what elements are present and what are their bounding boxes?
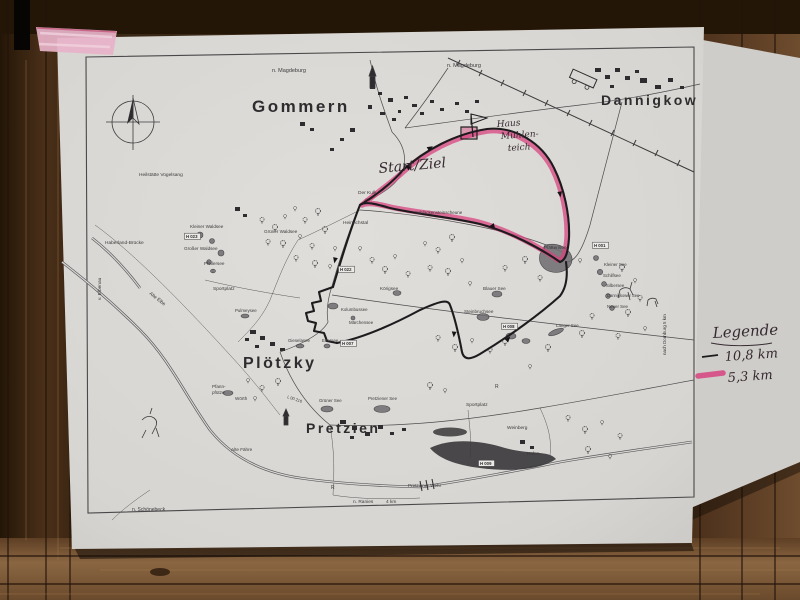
building-icon [250,330,256,334]
legend-line-pink [698,373,723,376]
map-label-heilstätte-vogelsang: Heilstätte Vogelsang [139,172,183,178]
building-icon [243,214,247,217]
trail-badge-h-009: H 009 [480,461,492,466]
building-icon [465,110,469,113]
map-label-langer-see: Langer See [556,323,579,328]
map-label-n-magdeburg: n. Magdeburg [447,63,481,69]
building-icon [680,86,684,89]
map-label-steinbruchsee: Steinbruchsee [464,309,494,314]
building-icon [388,98,393,102]
building-icon [340,138,344,141]
map-label-pfeilersee: Pfeilersee [204,261,225,266]
building-icon [380,112,385,115]
building-icon [530,446,534,449]
map-label-körigsee: Körigsee [380,286,399,291]
map-label-plattensee: Plattensee [544,245,567,251]
building-icon [625,76,630,80]
map-label-haus: Haus [496,118,522,130]
map-label-pretziener-wehr: Pretziener Wehr [408,483,442,488]
photo-of-route-map: H 023H 022H 007H 008H 009H 001 GommernDa… [0,0,800,600]
building-icon [455,102,459,105]
map-label-weinberg: Weinberg [507,425,528,431]
map-label-gieselasee: Gieselasee [288,338,311,343]
map-label-pretzien: Pretzien [306,420,380,436]
map-label-neuer-see: Neuer See [607,304,629,309]
building-icon [475,100,479,103]
map-label-r: R [495,384,499,390]
building-icon [350,436,354,439]
map-label-pretziener-see: Pretziener See [368,396,398,401]
building-icon [635,70,639,73]
building-icon [595,68,601,72]
map-label-märchensee: Märchensee [349,320,374,325]
building-icon [402,428,406,431]
building-icon [255,345,259,348]
map-label-sportplatz: Sportplatz [466,402,488,408]
building-icon [300,122,305,126]
building-icon [330,148,334,151]
map-label-n-schönebeck: n. Schönebeck [132,507,166,513]
map-label-edersee: Edersee [322,338,339,343]
building-icon [350,128,355,132]
building-icon [440,108,444,111]
building-icon [260,336,265,340]
building-icon [640,78,647,83]
legend-title: Legende [711,321,778,342]
map-label-dannigkower-see: Dannigkower See [607,293,640,298]
trail-badge-h-022: H 022 [340,267,352,272]
scene: H 023H 022H 007H 008H 009H 001 GommernDa… [0,0,800,600]
trail-badge-h-023: H 023 [186,234,198,239]
building-icon [668,78,673,82]
trail-badge-h-007: H 007 [342,341,354,346]
building-icon [390,432,394,435]
building-icon [378,92,382,95]
map-label-grüner-waldsee: Grüner Waldsee [264,229,298,234]
map-label-kleiner-waldsee: Kleiner Waldsee [190,224,224,229]
map-label-schilfsee: Schilfsee [603,273,621,278]
building-icon [280,348,285,351]
building-icon [615,68,620,72]
paper-sheet-right [686,38,800,510]
map-label-pfütze: pfütze [212,390,225,395]
building-icon [392,118,396,121]
map-label-pfann-: Pfann- [212,384,226,389]
building-icon [430,100,434,103]
building-icon [412,104,417,107]
building-icon [310,128,314,131]
map-label-n-magdeburg: n. Magdeburg [272,68,306,74]
map-label-großer-waldsee: Großer Waldsee [184,246,218,251]
map-label-kleiner-see: Kleiner See [604,262,627,267]
map-label-r: R [331,485,335,491]
map-label-wörth: Wörth [235,396,248,401]
building-icon [235,207,240,211]
map-label-nach-dornburg-5-km: nach Dornburg 5 km [662,314,667,355]
map-label-pulmeysee: Pulmeysee [235,308,257,313]
map-label-schlackensteinscheune: Schlackensteinscheune [415,210,463,215]
map-label-kolumbussee: Kolumbussee [341,307,368,312]
legend-label-5-3km: 5,3 km [727,368,773,386]
trail-badge-h-008: H 008 [503,324,515,329]
building-icon [520,440,525,444]
map-label-haberland-brücke: Haberland-Brücke [105,240,144,246]
map-label-heinrichstal: Heinrichstal [343,220,368,226]
building-icon [245,338,249,341]
map-label-der-kulk: Der Kulk [358,190,377,196]
plank-gap [14,0,30,50]
building-icon [368,105,372,109]
trail-badge-h-001: H 001 [594,243,606,248]
map-label-grüner-see: Grüner See [319,398,342,403]
map-label-alte-fähre: Alte Fähre [231,447,253,452]
map-label-gommern: Gommern [252,97,350,116]
building-icon [610,85,614,88]
building-icon [655,85,661,89]
map-label-silbersee: Silbersee [606,283,625,288]
building-icon [270,342,275,346]
map-label-dannigkow: Dannigkow [601,92,698,108]
wood-knot [150,568,170,576]
map-label-v-elbenau: v. Elbenau [97,277,103,300]
building-icon [404,96,408,99]
map-label-n-ranies: n. Ranies [353,499,374,505]
map-label-teich: teich [508,142,531,154]
map-label-4-km: 4 km [386,499,396,505]
map-label-hafen: Hafen [527,451,540,456]
building-icon [605,75,610,79]
map-label-blauer-see: Blauer See [483,286,506,291]
building-icon [398,110,401,113]
tape [36,27,117,55]
building-icon [420,112,424,115]
map-label-sportplatz: Sportplatz [213,286,235,292]
map-label-plötzky: Plötzky [243,355,317,372]
